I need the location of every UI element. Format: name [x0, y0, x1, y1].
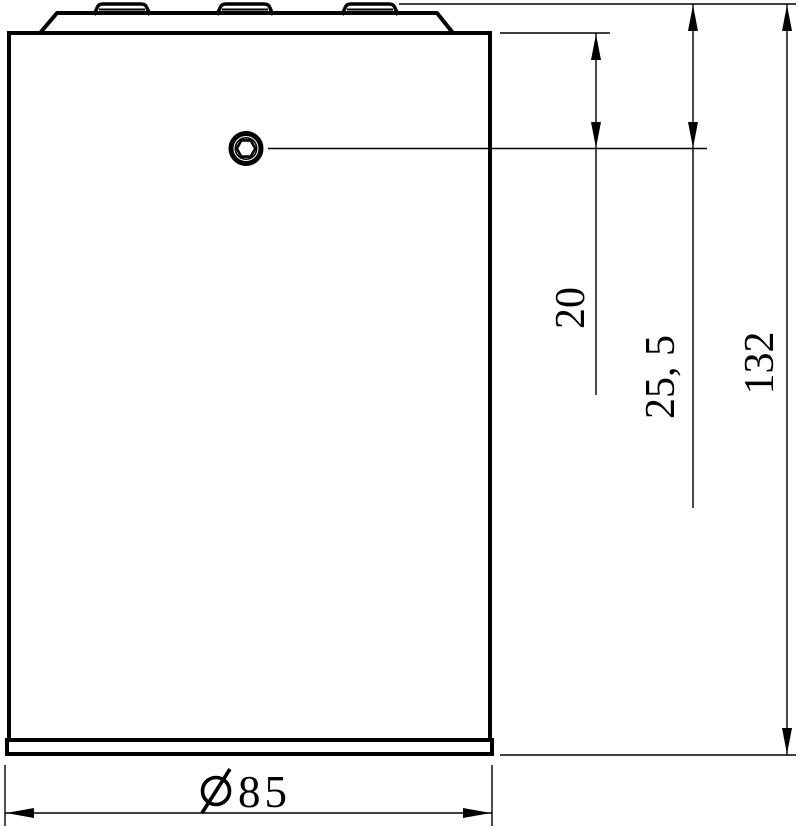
arrow-132-down	[782, 728, 792, 754]
technical-drawing-canvas: 20 25, 5 132 85	[0, 0, 800, 827]
arrow-85-left	[6, 808, 34, 818]
hex-socket-screw	[231, 134, 261, 164]
arrow-85-right	[463, 808, 491, 818]
diameter-symbol-icon	[202, 769, 230, 813]
arrow-25-5-down	[688, 122, 698, 148]
screw-hex-socket	[237, 140, 256, 156]
part-top-cap	[40, 13, 453, 33]
arrow-25-5-up	[688, 5, 698, 31]
dimension-label-20: 20	[548, 287, 594, 329]
dimension-label-25-5: 25, 5	[638, 335, 684, 419]
arrow-20-down	[591, 122, 601, 148]
arrow-20-up	[591, 34, 601, 60]
part-base-plate	[7, 740, 492, 754]
dimension-label-diameter-85: 85	[238, 767, 291, 817]
arrow-132-up	[782, 5, 792, 31]
dimension-label-132: 132	[737, 332, 783, 395]
technical-drawing-svg: 20 25, 5 132 85	[0, 0, 800, 827]
